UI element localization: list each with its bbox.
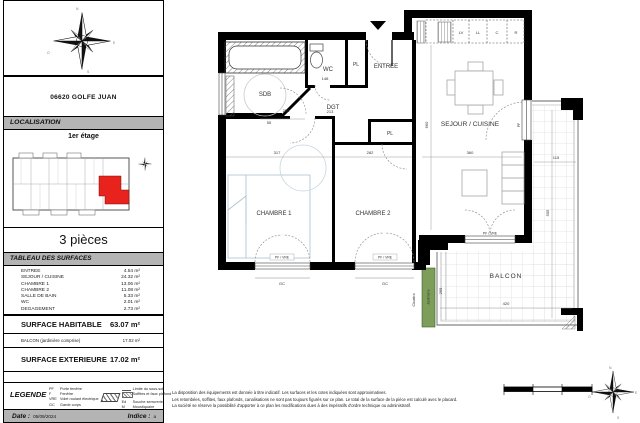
surfaces-table: ENTREE4.54 m² SEJOUR / CUISINE24.32 m² C… xyxy=(4,266,163,314)
surface-habitable-row: SURFACE HABITABLE 63.07 m² xyxy=(4,314,163,334)
site-plan-thumbnail xyxy=(7,146,159,222)
legend-abbr-column: PFPorte fenêtre FFenêtre VREVolet roulan… xyxy=(49,387,99,408)
compass-e: E xyxy=(113,41,116,45)
compass-o: O xyxy=(47,51,50,55)
compass-s: S xyxy=(87,70,90,74)
jardiniere-label: Jardinière xyxy=(427,289,431,304)
surfaces-table-header: TABLEAU DES SURFACES xyxy=(4,252,163,266)
floor-plan-drawing: Jardinière Claustra BALCON xyxy=(170,0,640,385)
balcon-value: 17.02 m² xyxy=(123,338,140,343)
floorplan-sheet: N E S O 06620 GOLFE JUAN LOCALISATION 1e… xyxy=(0,0,640,423)
info-sidebar: N E S O 06620 GOLFE JUAN LOCALISATION 1e… xyxy=(3,0,164,423)
compass-top-box: N E S O xyxy=(4,1,163,77)
balcony-door-label: PF xyxy=(517,123,521,127)
dim-balcon-side: 505 xyxy=(545,209,550,216)
row-label: DEGAGEMENT xyxy=(21,307,55,313)
balcony: Jardinière Claustra BALCON xyxy=(412,98,583,331)
window-label: PF / VRE xyxy=(378,256,393,260)
compass-o: O xyxy=(588,395,591,399)
line-symbol-icon xyxy=(122,390,131,391)
compass-n: N xyxy=(76,7,79,11)
appliance-r: R xyxy=(515,30,518,35)
coffee-table xyxy=(462,170,487,196)
localisation-section: 1er étage xyxy=(4,130,163,227)
dim-sdb-door: 55 xyxy=(267,120,272,125)
balcon-row: BALCON (jardinière comprise) 17.02 m² xyxy=(4,334,163,348)
row-value: 2.73 m² xyxy=(124,307,140,313)
disclaimer-text: La disposition des équipements est donné… xyxy=(172,390,524,410)
exterieure-label: SURFACE EXTERIEURE xyxy=(21,355,107,364)
localisation-header: LOCALISATION xyxy=(4,116,163,130)
date-label: Date : xyxy=(12,413,30,420)
dim-sejour-w: 360 xyxy=(467,150,474,155)
indice-label: Indice : xyxy=(128,413,151,420)
legend-key: GC xyxy=(49,403,60,408)
legend-box: LEGENDE PFPorte fenêtre FFenêtre VREVole… xyxy=(4,382,163,409)
dim-wc: 148 xyxy=(322,76,329,81)
room-label-pl2: PL xyxy=(387,131,393,137)
room-label-dgt: DGT xyxy=(327,105,340,111)
dim-sdb: 208 xyxy=(283,108,290,113)
habitable-label: SURFACE HABITABLE xyxy=(21,320,102,329)
garde-corps-label: GC xyxy=(279,281,285,286)
room-label-balcon: BALCON xyxy=(490,273,523,280)
window-label: PF / VRE xyxy=(275,256,290,260)
room-label-entree: ENTREE xyxy=(374,64,398,70)
legend-title: LEGENDE xyxy=(10,390,46,399)
legend-label: Garde corps xyxy=(60,403,81,408)
table-row: DEGAGEMENT2.73 m² xyxy=(21,307,140,313)
dining-table xyxy=(447,62,503,114)
compass-e: E xyxy=(635,391,638,395)
date-indice-bar: Date : 05/09/2024 Indice : a xyxy=(4,409,163,422)
hatch-symbol-icon xyxy=(122,392,133,398)
dim-balcon-h: 255 xyxy=(438,287,443,294)
disclaimer-line: La société se réserve la possibilité d'a… xyxy=(172,403,524,410)
room-label-sejour: SEJOUR / CUISINE xyxy=(441,121,500,128)
date-value: 05/09/2024 xyxy=(33,414,56,419)
postcode-city: 06620 GOLFE JUAN xyxy=(4,79,163,116)
floor-label: 1er étage xyxy=(4,133,163,140)
interior-walls xyxy=(222,40,416,270)
dim-chambre2: 282 xyxy=(367,150,374,155)
garde-corps-label: GC xyxy=(382,281,388,286)
legend-item: GCGarde corps xyxy=(49,403,99,408)
dim-sejour-h: 660 xyxy=(424,121,429,128)
sofa xyxy=(502,152,524,204)
appliance-ll: LL xyxy=(476,30,481,35)
indice-value: a xyxy=(153,414,156,419)
compass-n: N xyxy=(609,366,612,370)
habitable-value: 63.07 m² xyxy=(110,320,140,329)
legend-label: Soffites et faux plafond xyxy=(133,392,172,400)
hatch-symbol-icon xyxy=(100,393,120,402)
balcon-label: BALCON (jardinière comprise) xyxy=(21,338,80,343)
entrance-arrow-icon xyxy=(370,21,386,30)
room-label-chambre2: CHAMBRE 2 xyxy=(355,211,391,217)
dim-chambre1: 317 xyxy=(274,150,281,155)
legend-symbols-column: Limite du sous-sol Soffites et faux plaf… xyxy=(122,387,172,410)
dim-balcon-w: 420 xyxy=(503,301,510,306)
toilet xyxy=(310,44,323,68)
room-label-chambre1: CHAMBRE 1 xyxy=(256,211,292,217)
room-label-sdb: SDB xyxy=(259,92,271,98)
compass-s: S xyxy=(617,416,620,420)
claustra-label: Claustra xyxy=(412,293,416,306)
exterieure-value: 17.02 m² xyxy=(110,355,140,364)
minimap-compass-icon xyxy=(138,157,151,170)
balcony-door-label: PF / VRE xyxy=(483,232,498,236)
dim-balcon-strip: 115 xyxy=(553,155,560,160)
appliance-lv: LV xyxy=(459,30,464,35)
legend-item: Soffites et faux plafond xyxy=(122,392,172,400)
room-label-pl1: PL xyxy=(353,62,359,68)
fixtures-furniture xyxy=(225,20,524,258)
surface-exterieure-row: SURFACE EXTERIEURE 17.02 m² xyxy=(4,348,163,372)
appliance-c: C xyxy=(496,30,499,35)
compass-rose-icon: N E S O xyxy=(4,1,163,75)
rooms-count: 3 pièces xyxy=(4,227,163,252)
room-label-wc: WC xyxy=(323,67,334,73)
kitchen-appliance-labels: LV LL C R xyxy=(459,30,518,35)
kitchen-sink xyxy=(438,22,451,42)
compass-rose-icon: N E S O xyxy=(586,360,640,422)
